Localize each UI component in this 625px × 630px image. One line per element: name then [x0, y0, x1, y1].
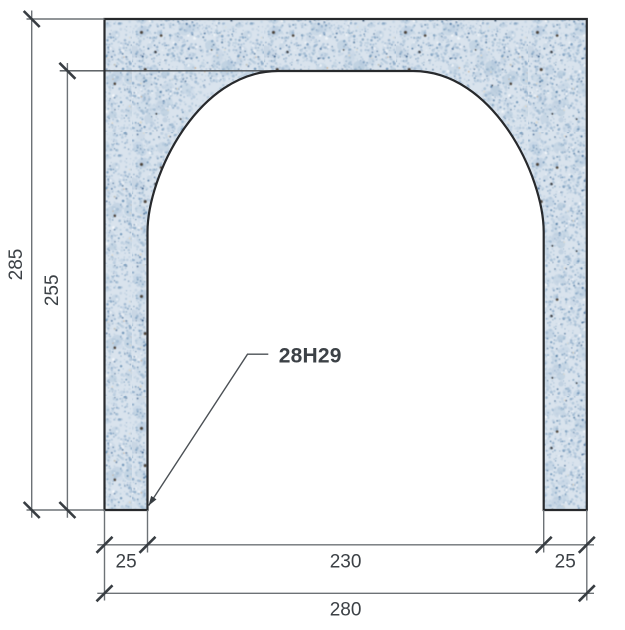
svg-text:280: 280	[330, 600, 362, 621]
svg-text:285: 285	[6, 249, 27, 281]
svg-text:25: 25	[116, 551, 137, 572]
svg-text:255: 255	[42, 274, 63, 306]
svg-text:230: 230	[330, 551, 362, 572]
svg-text:28H29: 28H29	[279, 344, 342, 367]
svg-text:25: 25	[555, 551, 576, 572]
